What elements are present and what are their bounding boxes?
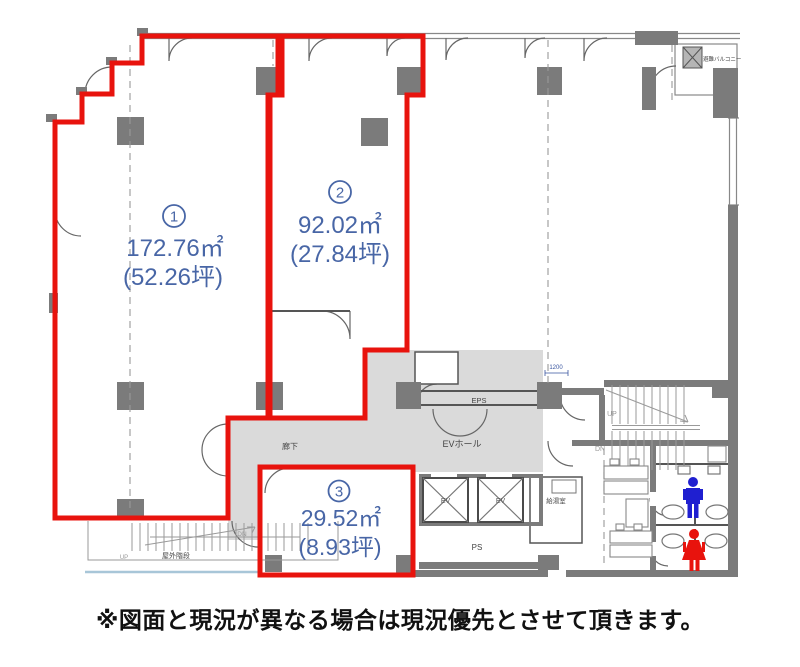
- unit3-area-sqm: 29.52㎡: [301, 505, 382, 531]
- column: [361, 118, 388, 146]
- mens-icon: [683, 477, 703, 518]
- toilet: [705, 534, 727, 548]
- corner-pillar: [713, 68, 738, 118]
- toilet: [706, 505, 728, 519]
- grid-lines: [130, 40, 672, 568]
- toilet: [662, 534, 684, 548]
- corridor-dn-label: DN: [237, 531, 247, 538]
- disclaimer-caption: ※図面と現況が異なる場合は現況優先とさせて頂きます。: [0, 601, 800, 635]
- ps-label: PS: [472, 543, 483, 552]
- column: [537, 382, 562, 409]
- elevator1-label: EV: [441, 498, 451, 505]
- unit2-area-tsubo: (27.84坪): [290, 241, 390, 268]
- kitchenette-label: 給湯室: [546, 496, 566, 505]
- unit2-area-sqm: 92.02㎡: [298, 212, 382, 239]
- stairs-dn-label: DN: [595, 446, 605, 453]
- door-top-4: [446, 38, 468, 60]
- sink: [678, 466, 690, 474]
- column: [396, 382, 421, 409]
- door-unit3-entrance: [265, 468, 290, 493]
- balcony-hatch: [683, 47, 702, 68]
- door-top-1: [169, 38, 192, 61]
- entrance-gap: [548, 570, 566, 577]
- toilet: [662, 505, 684, 519]
- unit1-area-sqm: 172.76㎡: [126, 235, 223, 262]
- door-stair-hall: [560, 395, 585, 420]
- door-top-2: [309, 38, 332, 61]
- door-top-5: [525, 38, 545, 58]
- right-window-wall: [728, 118, 739, 205]
- right-wall: [728, 205, 738, 577]
- elevator2-label: EV: [496, 498, 506, 505]
- wc-door-gap: [650, 492, 656, 506]
- eps-label: EPS: [471, 396, 486, 405]
- sink: [708, 466, 720, 474]
- stairs-up-label: UP: [607, 411, 617, 418]
- unit1-number: 1: [170, 209, 178, 226]
- door-office: [548, 441, 573, 466]
- ev-hall-label: EVホール: [442, 439, 481, 449]
- outer-thin-walls: [142, 34, 740, 206]
- door-step: [85, 67, 112, 94]
- pillar: [397, 67, 422, 95]
- womens-icon: [682, 529, 706, 571]
- door-left-wall: [55, 210, 81, 236]
- outdoor-stairs-label: 屋外階段: [162, 551, 190, 560]
- door-arcs: [55, 38, 676, 566]
- small-room: [415, 352, 458, 384]
- unit3-number: 3: [335, 484, 343, 501]
- door-unit1-entrance: [202, 424, 228, 476]
- dark-walls: [46, 28, 738, 577]
- door-top-3: [387, 38, 405, 56]
- dimension-label: 1200: [549, 365, 563, 371]
- door-unit2-room: [322, 311, 350, 339]
- pillar: [537, 67, 562, 95]
- floor-plan-page: 1200 1 172.76㎡ (52.26坪) 2 92.02㎡ (27.84坪…: [0, 0, 800, 667]
- evacuation-balcony-label: 避難バルコニー: [703, 55, 741, 63]
- unit3-area-tsubo: (8.93坪): [298, 534, 381, 560]
- floor-plan-drawing: 1200 1 172.76㎡ (52.26坪) 2 92.02㎡ (27.84坪…: [0, 0, 800, 600]
- corridor-label: 廊下: [282, 441, 298, 451]
- elevator-block: [419, 474, 543, 569]
- door-top-6: [584, 38, 607, 61]
- bottom-wall: [413, 570, 738, 577]
- unit1-area-tsubo: (52.26坪): [123, 264, 223, 291]
- kitchenette-sink: [552, 480, 576, 493]
- dimension-annotation: 1200: [545, 365, 568, 376]
- outdoor-up-label: UP: [120, 555, 128, 561]
- unit2-number: 2: [336, 185, 344, 202]
